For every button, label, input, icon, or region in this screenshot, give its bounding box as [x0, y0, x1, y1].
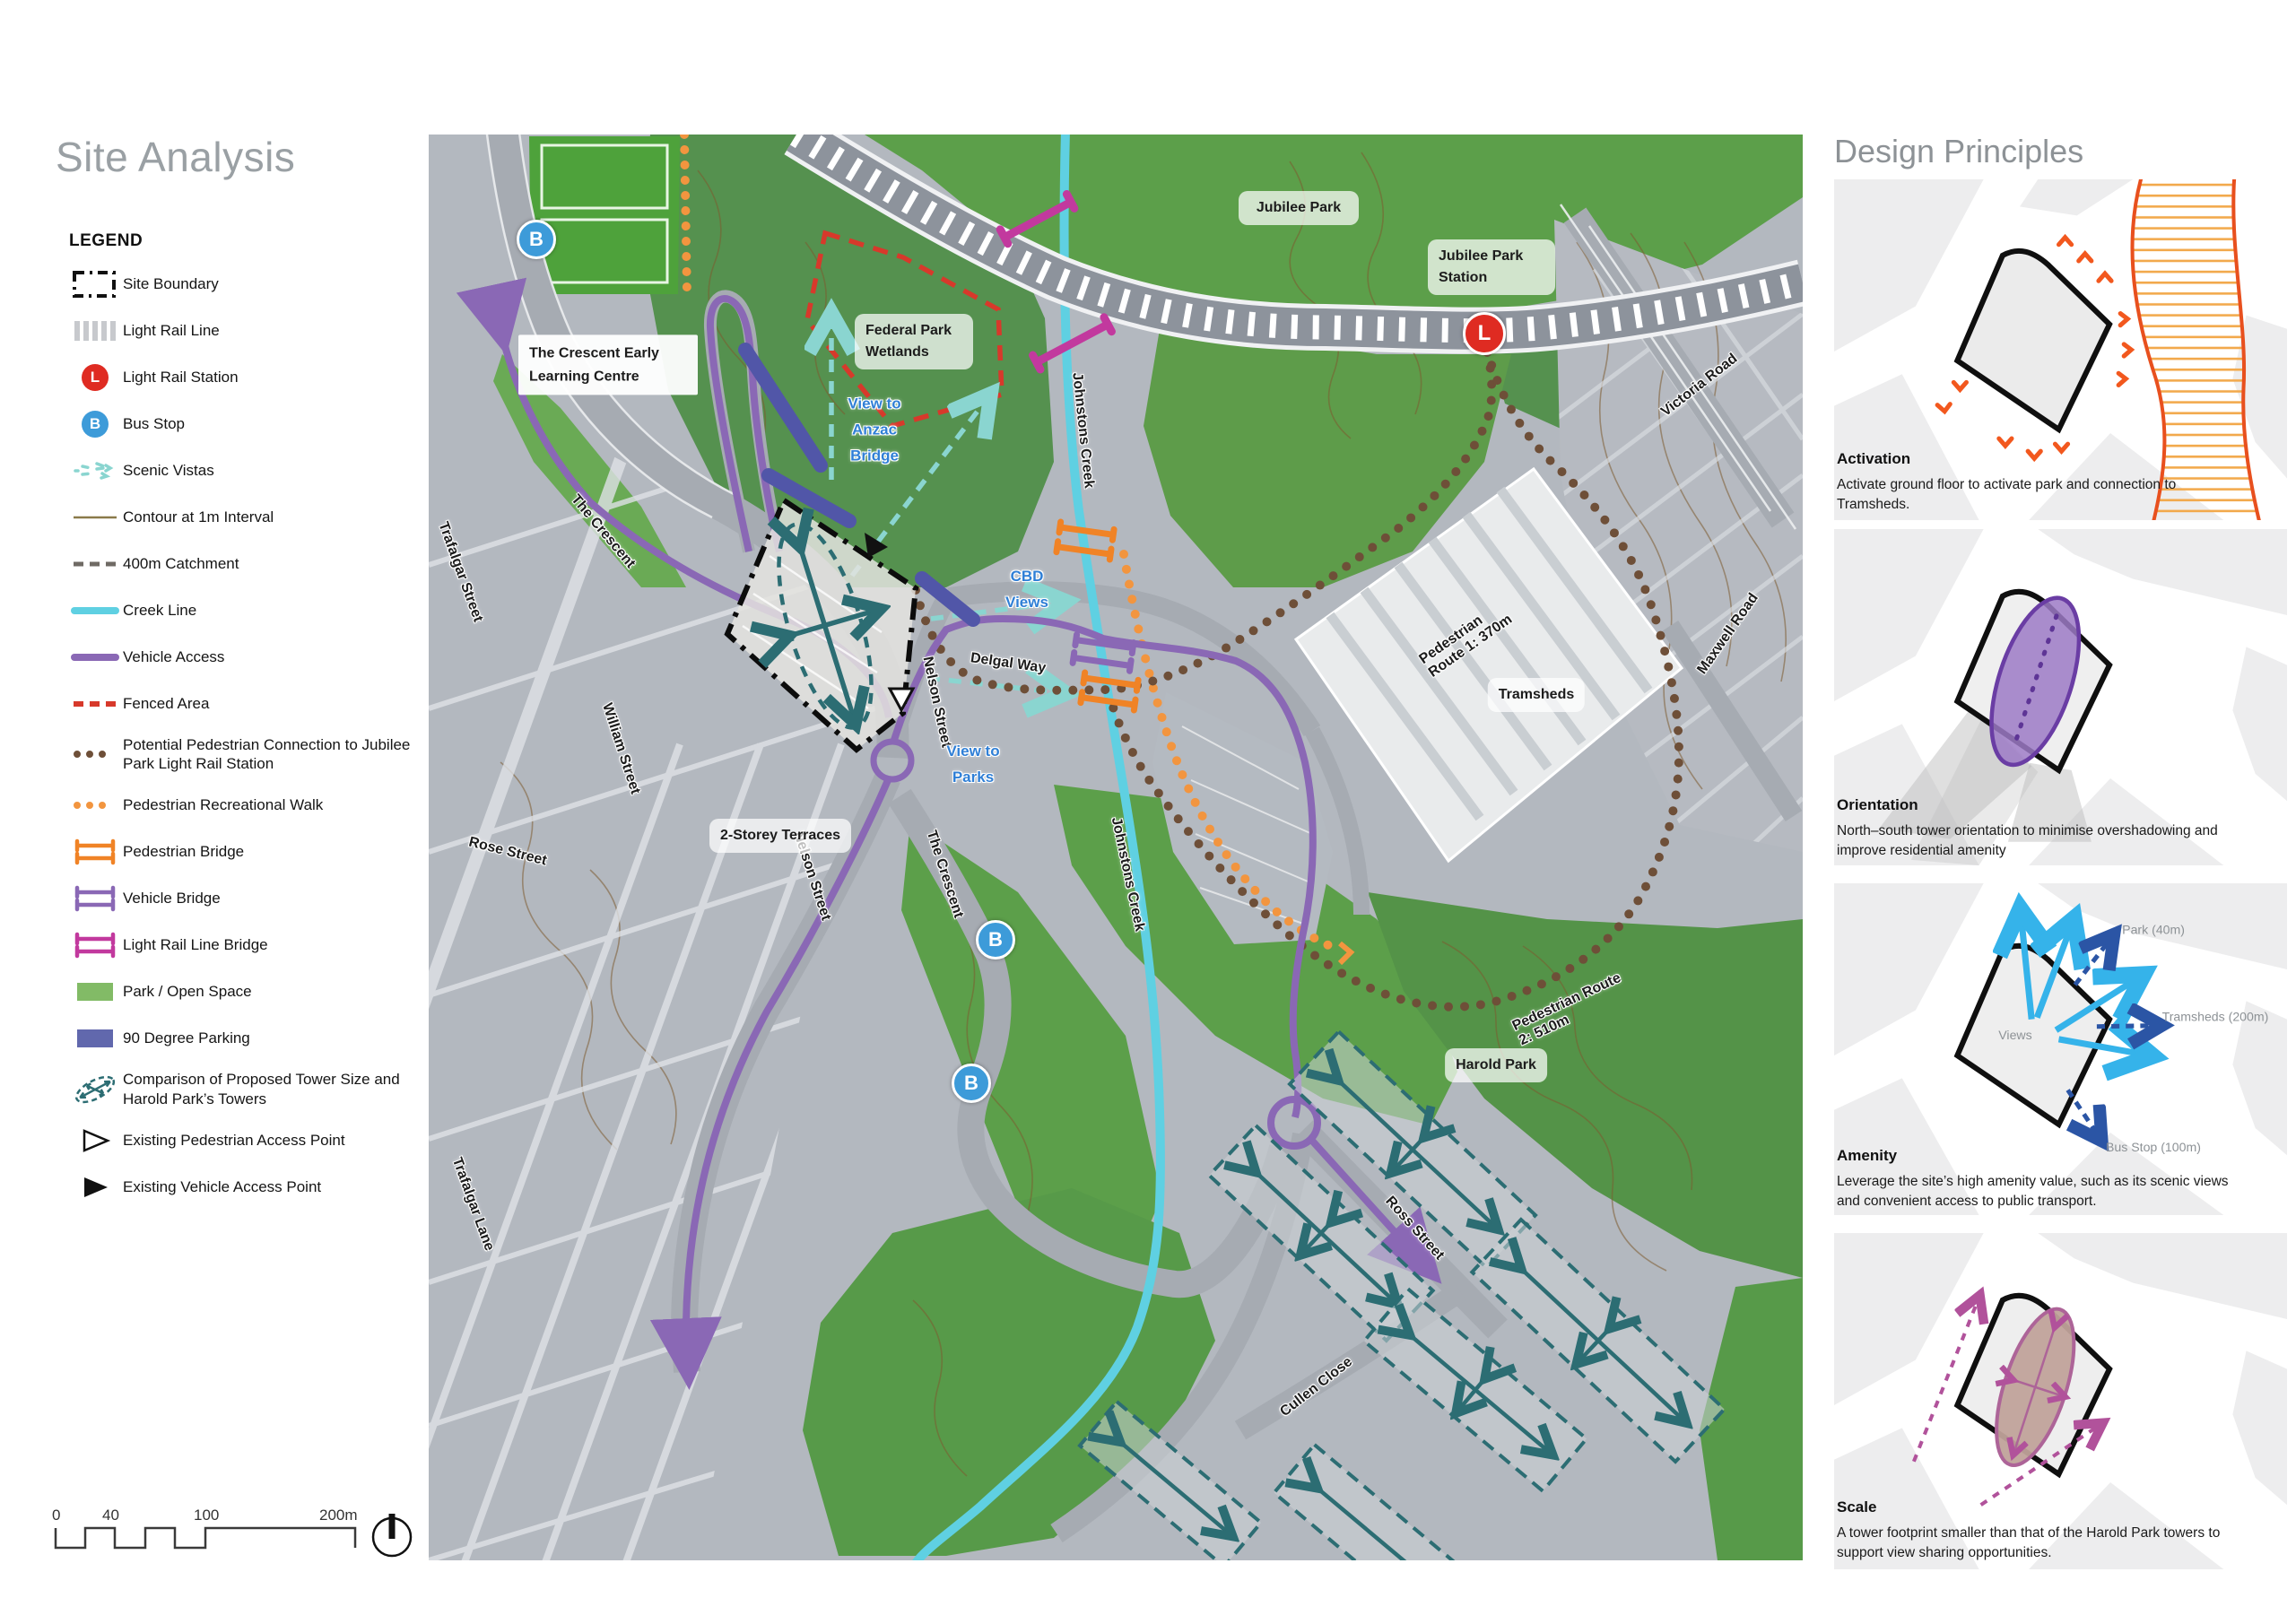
vehicle-access-point-icon — [67, 1172, 123, 1203]
label-cullen-close: Cullen Close — [1277, 1354, 1355, 1420]
contour-icon — [67, 502, 123, 533]
label-trafalgar-street: Trafalgar Street — [434, 520, 485, 624]
fenced-area-icon — [67, 689, 123, 719]
legend-item-pedestrian-connection: Potential Pedestrian Connection to Jubil… — [67, 735, 435, 774]
label-pedestrian-route-1: Pedestrian Route 1: 370m — [1416, 590, 1526, 681]
legend-item-400m-catchment: 400m Catchment — [67, 549, 435, 579]
legend-item-light-rail-line: Light Rail Line — [67, 316, 435, 346]
principle-orientation: Orientation North–south tower orientatio… — [1834, 529, 2287, 865]
label-pedestrian-route-2: Pedestrian Route 2: 510m — [1510, 970, 1631, 1049]
bus-stop-icon: B — [82, 411, 109, 438]
vehicle-access-icon — [67, 642, 123, 673]
label-ross-street: Ross Street — [1382, 1194, 1448, 1264]
north-arrow-icon — [373, 1514, 411, 1556]
label-rose-street: Rose Street — [467, 835, 549, 870]
orientation-title: Orientation — [1837, 796, 2249, 814]
legend-item-vehicle-bridge: Vehicle Bridge — [67, 883, 435, 914]
parking-icon — [67, 1023, 123, 1054]
label-delgal-way: Delgal Way — [970, 650, 1047, 677]
scale-bar: 0 40 100 200m — [50, 1507, 427, 1569]
bus-stop-marker: B — [517, 220, 556, 259]
light-rail-line-icon — [67, 316, 123, 346]
legend-item-scenic-vistas: Scenic Vistas — [67, 456, 435, 486]
label-view-to-parks: View to Parks — [944, 739, 1002, 791]
pedestrian-access-icon — [67, 1125, 123, 1156]
light-rail-station-icon: L — [82, 364, 109, 391]
principle-scale: Scale A tower footprint smaller than tha… — [1834, 1233, 2287, 1569]
map-labels: Jubilee Park Jubilee Park Station Victor… — [429, 135, 1803, 1560]
legend-item-light-rail-station: L Light Rail Station — [67, 362, 435, 393]
legend-item-park-open-space: Park / Open Space — [67, 977, 435, 1007]
legend-item-bus-stop: B Bus Stop — [67, 409, 435, 439]
pedestrian-connection-icon — [67, 739, 123, 769]
activation-text: Activate ground floor to activate park a… — [1837, 475, 2249, 514]
legend-item-90-degree-parking: 90 Degree Parking — [67, 1023, 435, 1054]
label-cbd-views: CBD Views — [999, 564, 1055, 616]
label-johnstons-creek-upper: Johnstons Creek — [1068, 372, 1096, 490]
legend-item-vehicle-access-point: Existing Vehicle Access Point — [67, 1172, 435, 1203]
park-distance-label: Park (40m) — [2122, 923, 2185, 937]
legend-item-pedestrian-bridge: Pedestrian Bridge — [67, 837, 435, 867]
principle-amenity: Views Park (40m) Tramsheds (200m) Bus St… — [1834, 883, 2287, 1215]
label-jubilee-park-station: Jubilee Park Station — [1428, 239, 1555, 295]
label-trafalgar-lane: Trafalgar Lane — [448, 1156, 497, 1254]
legend-item-contour: Contour at 1m Interval — [67, 502, 435, 533]
bus-stop-marker: B — [976, 920, 1015, 960]
legend-item-light-rail-bridge: Light Rail Line Bridge — [67, 930, 435, 960]
amenity-text: Leverage the site’s high amenity value, … — [1837, 1172, 2249, 1211]
legend-item-creek-line: Creek Line — [67, 595, 435, 626]
legend-item-fenced-area: Fenced Area — [67, 689, 435, 719]
label-tramsheds: Tramsheds — [1488, 678, 1585, 712]
page-title: Site Analysis — [56, 133, 295, 181]
legend-item-recreational-walk: Pedestrian Recreational Walk — [67, 790, 435, 821]
catchment-icon — [67, 549, 123, 579]
park-open-space-icon — [67, 977, 123, 1007]
label-nelson-street-upper: Nelson Street — [918, 656, 953, 750]
label-federal-park-wetlands: Federal Park Wetlands — [855, 314, 973, 369]
design-principles-heading: Design Principles — [1834, 133, 2083, 170]
recreational-walk-icon — [67, 790, 123, 821]
page: { "page": { "title": "Site Analysis" }, … — [0, 0, 2296, 1624]
tramsheds-distance-label: Tramsheds (200m) — [2162, 1010, 2269, 1024]
tower-comparison-icon — [67, 1070, 123, 1109]
legend-item-tower-comparison: Comparison of Proposed Tower Size and Ha… — [67, 1070, 435, 1109]
amenity-title: Amenity — [1837, 1147, 2249, 1165]
label-victoria-road: Victoria Road — [1658, 351, 1741, 421]
legend-item-pedestrian-access: Existing Pedestrian Access Point — [67, 1125, 435, 1156]
label-crescent-early-learning: The Crescent Early Learning Centre — [518, 334, 698, 395]
light-rail-station-marker: L — [1463, 312, 1506, 355]
legend: Site Boundary Light Rail Line L Light Ra… — [67, 269, 435, 1219]
legend-heading: LEGEND — [69, 231, 143, 251]
label-the-crescent-upper: The Crescent — [568, 491, 639, 571]
orientation-text: North–south tower orientation to minimis… — [1837, 821, 2249, 860]
scale-title: Scale — [1837, 1498, 2249, 1516]
creek-line-icon — [67, 595, 123, 626]
vehicle-bridge-icon — [67, 883, 123, 914]
site-analysis-map: Jubilee Park Jubilee Park Station Victor… — [429, 135, 1803, 1560]
label-the-crescent-lower: The Crescent — [923, 829, 966, 920]
principle-activation: Activation Activate ground floor to acti… — [1834, 179, 2287, 520]
scale-bar-graphic — [50, 1507, 427, 1569]
bus-stop-marker: B — [952, 1064, 991, 1103]
activation-title: Activation — [1837, 450, 2249, 468]
pedestrian-bridge-icon — [67, 837, 123, 867]
label-maxwell-road: Maxwell Road — [1694, 590, 1761, 677]
label-harold-park: Harold Park — [1445, 1048, 1547, 1082]
label-view-to-anzac-bridge: View to Anzac Bridge — [837, 392, 912, 470]
scenic-vistas-icon — [67, 456, 123, 486]
light-rail-bridge-icon — [67, 930, 123, 960]
scale-text: A tower footprint smaller than that of t… — [1837, 1524, 2249, 1562]
site-boundary-icon — [67, 269, 123, 300]
legend-item-vehicle-access: Vehicle Access — [67, 642, 435, 673]
label-jubilee-park: Jubilee Park — [1239, 191, 1359, 225]
views-label: Views — [1998, 1028, 2031, 1042]
label-two-storey-terraces: 2-Storey Terraces — [709, 819, 851, 853]
label-william-street: William Street — [598, 701, 643, 796]
label-johnstons-creek-lower: Johnstons Creek — [1108, 816, 1148, 934]
legend-item-site-boundary: Site Boundary — [67, 269, 435, 300]
